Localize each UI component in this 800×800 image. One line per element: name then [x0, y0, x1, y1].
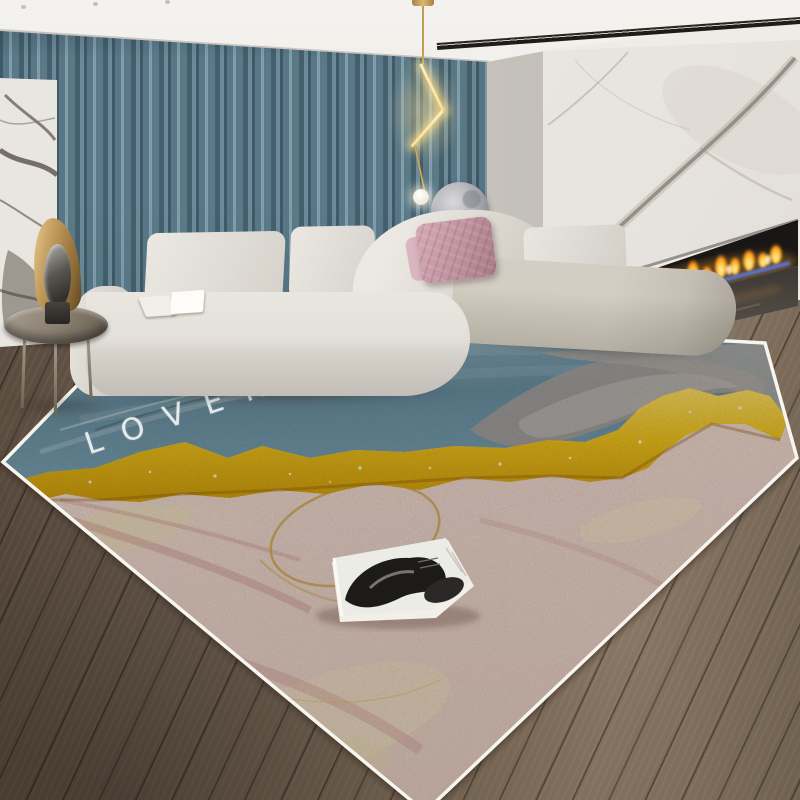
pendant-rod	[422, 0, 424, 66]
living-room-scene: LOVER of CITY	[0, 0, 800, 800]
table-leg	[54, 340, 57, 414]
pink-pillow	[415, 216, 498, 285]
sculpture-base	[45, 302, 70, 324]
pendant-ceiling-mount	[412, 0, 434, 6]
book-right-page	[170, 290, 204, 314]
open-book	[141, 290, 207, 320]
sculpture-mirror	[44, 244, 71, 308]
pendant-ball-light	[413, 189, 429, 205]
